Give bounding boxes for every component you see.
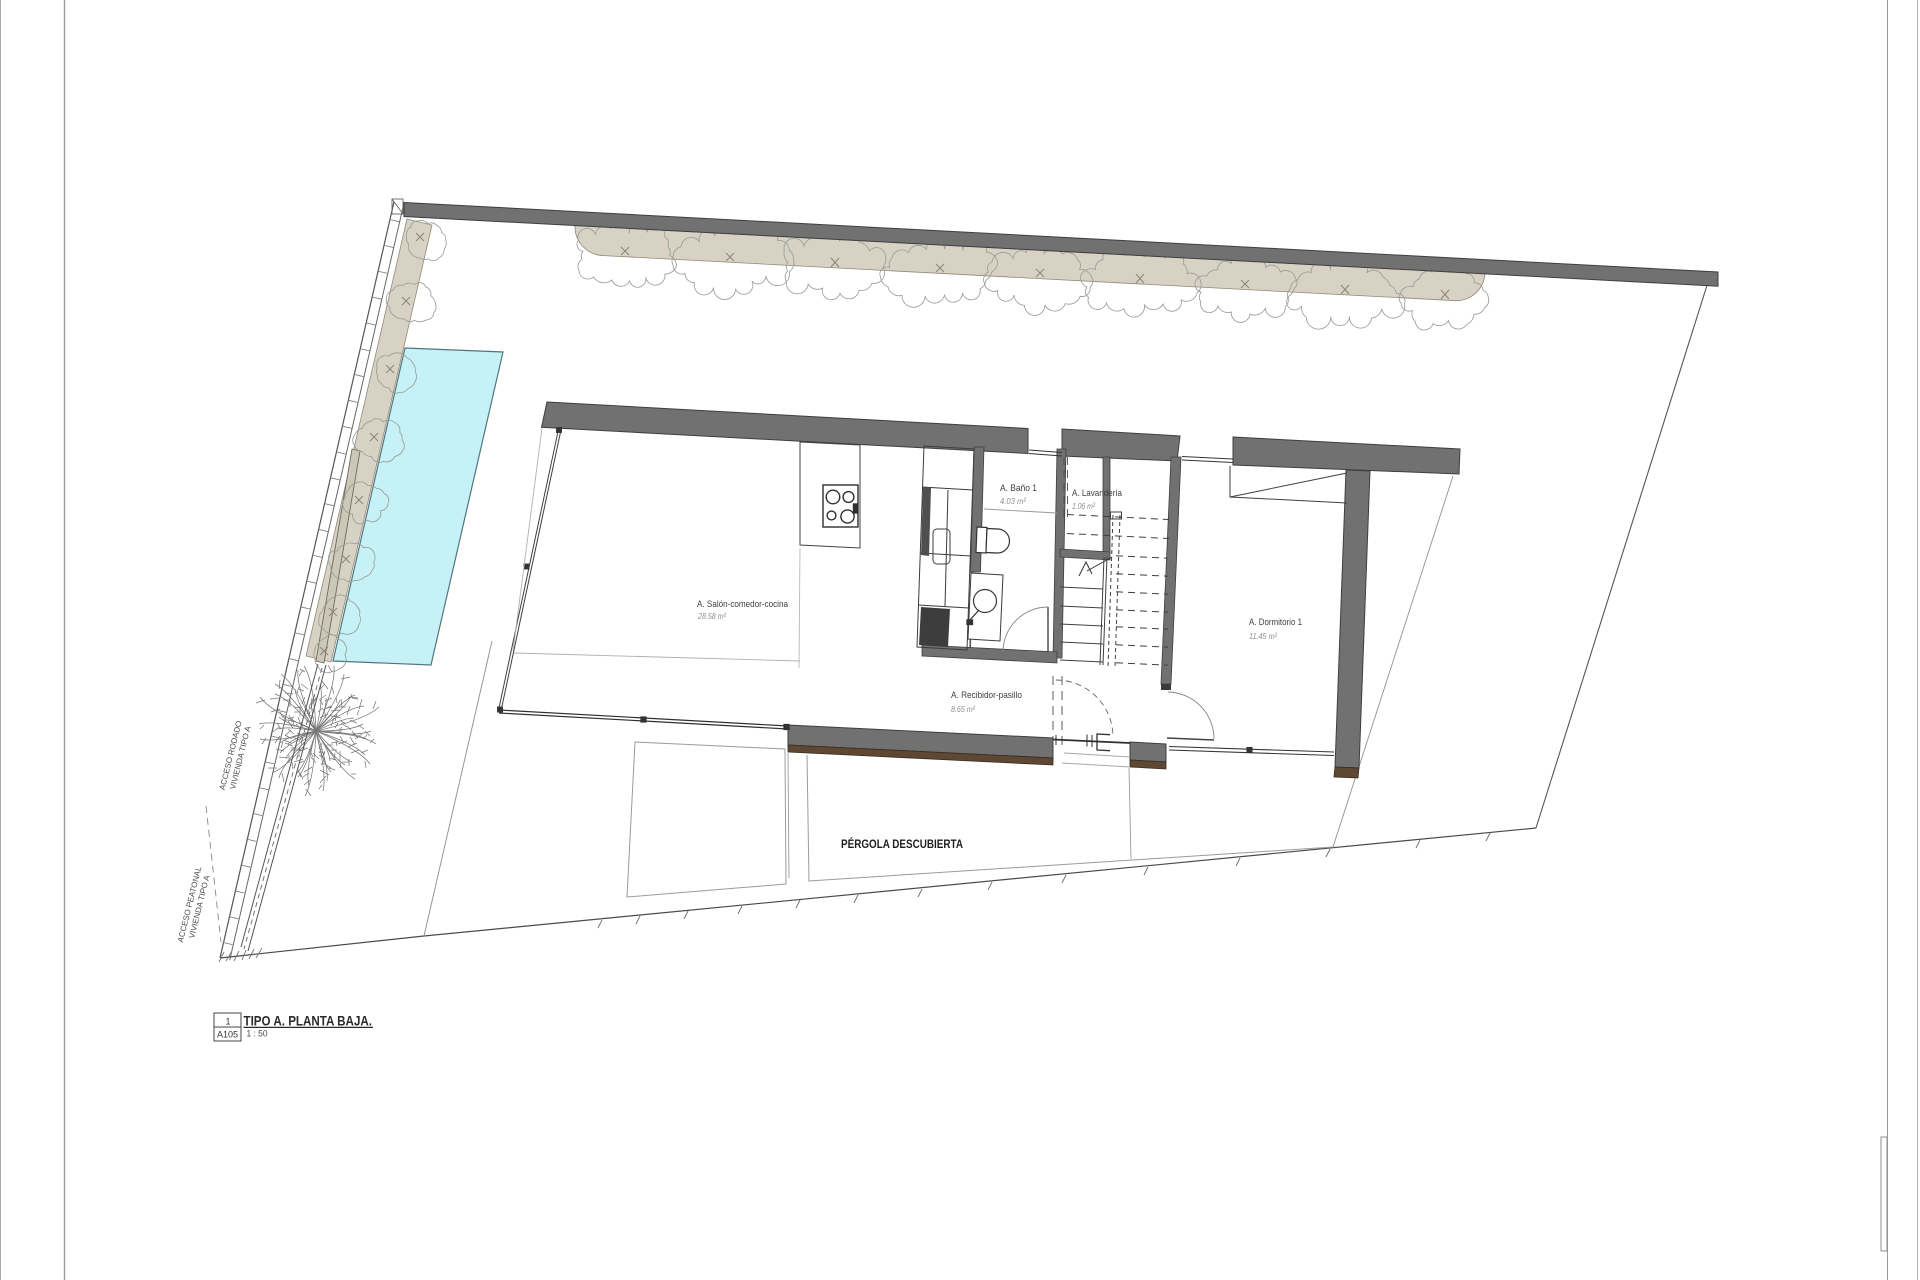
svg-text:PÉRGOLA DESCUBIERTA: PÉRGOLA DESCUBIERTA: [841, 838, 963, 851]
svg-text:TIPO A. PLANTA BAJA.: TIPO A. PLANTA BAJA.: [244, 1013, 373, 1029]
svg-text:1 : 50: 1 : 50: [247, 1029, 268, 1039]
svg-text:8.65 m²: 8.65 m²: [951, 704, 976, 714]
svg-text:4.03 m²: 4.03 m²: [1000, 496, 1027, 506]
svg-text:A. Salón-comedor-cocina: A. Salón-comedor-cocina: [697, 599, 789, 610]
svg-text:A. Dormitorio 1: A. Dormitorio 1: [1249, 617, 1302, 628]
svg-text:11.45 m²: 11.45 m²: [1249, 631, 1278, 641]
svg-text:A. Lavandería: A. Lavandería: [1072, 488, 1123, 499]
svg-text:A. Baño 1: A. Baño 1: [1000, 483, 1037, 494]
svg-text:28.58 m²: 28.58 m²: [697, 611, 727, 621]
svg-text:1.06 m²: 1.06 m²: [1072, 501, 1096, 511]
svg-text:1: 1: [225, 1017, 230, 1027]
svg-text:A105: A105: [217, 1030, 238, 1040]
svg-text:A. Recibidor-pasillo: A. Recibidor-pasillo: [951, 690, 1022, 701]
